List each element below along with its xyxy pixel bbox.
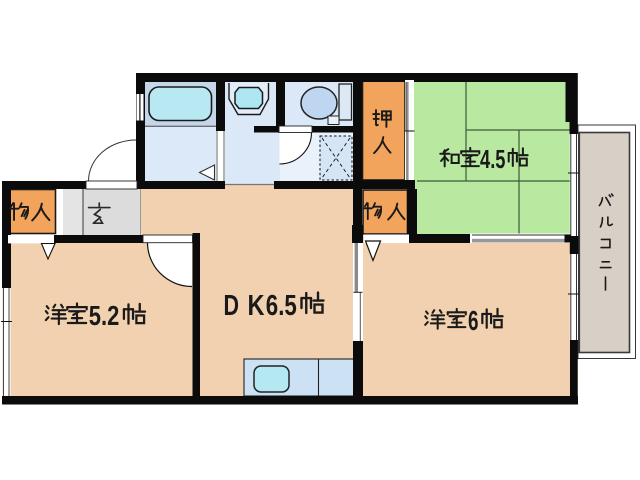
svg-text:K: K <box>248 290 265 322</box>
svg-text:D: D <box>224 290 240 322</box>
svg-text:5.2: 5.2 <box>89 300 120 331</box>
svg-text:4.5: 4.5 <box>480 144 506 174</box>
svg-text:6.5: 6.5 <box>266 290 297 322</box>
svg-text:6: 6 <box>468 305 479 336</box>
